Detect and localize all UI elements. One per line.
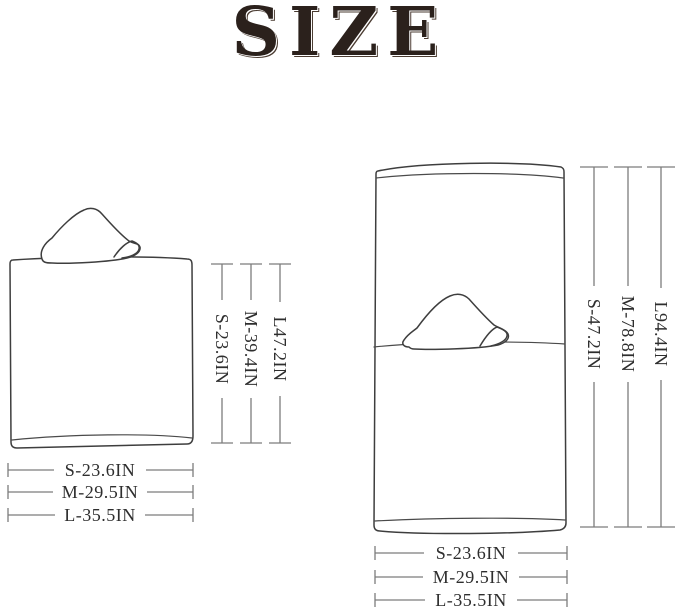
hem-line (12, 435, 192, 440)
unfolded-towel-figure (374, 163, 566, 533)
unfolded-height-label-m: M-78.8IN (618, 296, 638, 373)
unfolded-width-label-s: S-23.6IN (436, 543, 507, 563)
folded-height-label-l: L47.2IN (270, 317, 290, 382)
folded-width-label-m: M-29.5IN (62, 482, 139, 502)
towel-hood (403, 294, 509, 349)
unfolded-height-label-l: L94.4IN (651, 302, 671, 367)
folded-width-label-s: S-23.6IN (65, 460, 136, 480)
folded-height-label-m: M-39.4IN (241, 311, 261, 388)
bottom-hem-line (375, 518, 565, 521)
size-diagram: S-23.6IN M-39.4IN L47.2IN S-23.6IN (0, 0, 679, 615)
towel-hood (41, 208, 140, 263)
folded-height-dimensions: S-23.6IN M-39.4IN L47.2IN (211, 264, 291, 443)
folded-width-label-l: L-35.5IN (64, 505, 135, 525)
unfolded-width-label-l: L-35.5IN (435, 590, 506, 610)
unfolded-width-dimensions: S-23.6IN M-29.5IN L-35.5IN (375, 543, 567, 610)
folded-height-label-s: S-23.6IN (212, 314, 232, 385)
towel-body (10, 257, 193, 448)
unfolded-width-label-m: M-29.5IN (433, 567, 510, 587)
folded-towel-figure (10, 208, 193, 448)
size-chart: SIZE S-23.6IN M (0, 0, 679, 615)
folded-width-dimensions: S-23.6IN M-29.5IN L-35.5IN (8, 460, 193, 525)
top-hem-line (376, 174, 563, 179)
unfolded-height-label-s: S-47.2IN (584, 299, 604, 370)
unfolded-height-dimensions: S-47.2IN M-78.8IN L94.4IN (580, 167, 675, 527)
